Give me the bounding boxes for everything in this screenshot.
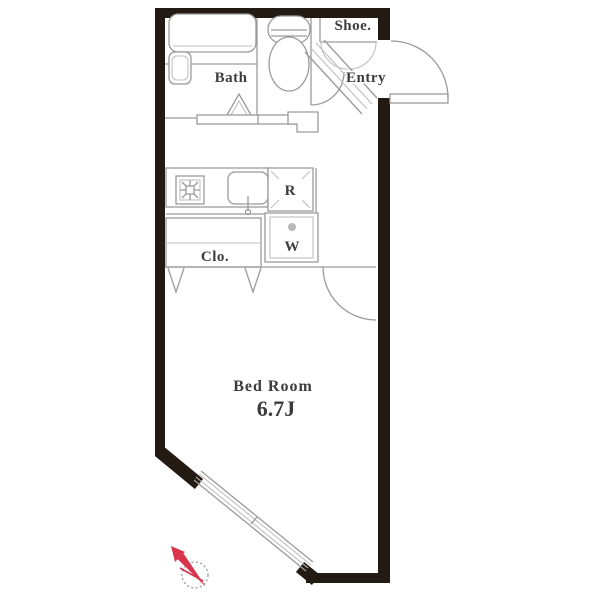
- floor-plan-canvas: Bath Shoe. Entry R W Clo. Bed Room 6.7J: [0, 0, 600, 600]
- toilet-icon: [268, 16, 310, 91]
- floor-plan-drawing: Bath Shoe. Entry R W Clo. Bed Room 6.7J: [0, 0, 600, 600]
- kitchen-sink-icon: [228, 172, 268, 215]
- bedroom-label: Bed Room: [233, 378, 313, 395]
- window-band: [194, 471, 313, 571]
- stove-icon: [176, 176, 204, 204]
- bath-label: Bath: [215, 70, 248, 86]
- bedroom-size-label: 6.7J: [257, 396, 296, 421]
- kitchen: [166, 168, 268, 215]
- entry-label: Entry: [346, 70, 386, 86]
- washer-label: W: [285, 239, 300, 255]
- outer-walls: [155, 8, 390, 583]
- bedroom-door-swing-arc: [323, 267, 376, 320]
- bedroom-partition: [165, 267, 376, 320]
- washbasin-icon: [169, 52, 191, 84]
- shoe-label: Shoe.: [334, 18, 371, 34]
- front-door: [390, 41, 448, 103]
- closet-label: Clo.: [201, 249, 229, 265]
- closet-folding-door-icon: [168, 268, 261, 292]
- compass-north-icon: [171, 546, 208, 588]
- bath-folding-door-icon: [227, 94, 251, 115]
- entry-step: [288, 112, 318, 132]
- refrigerator-label: R: [285, 183, 296, 199]
- front-door-swing-arc: [391, 41, 448, 98]
- bathtub-icon: [169, 14, 256, 52]
